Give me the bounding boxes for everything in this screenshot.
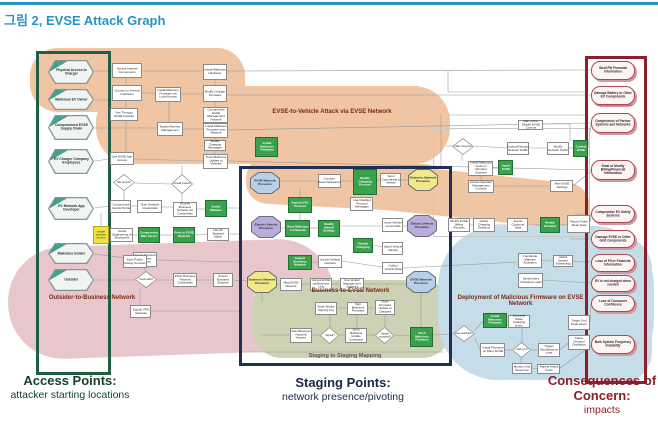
attack-step-node: Install Malicious Firmware over Network — [203, 123, 228, 138]
attack-step-node: Steal Vendor Signing Key — [315, 302, 337, 315]
consequence-node: Loss of PII or Financial Information — [591, 254, 635, 272]
attack-step-node: Access Vehicle Interface — [318, 255, 342, 268]
attack-action-node: Install Malicious Firmware — [255, 137, 278, 157]
consequence-node: Compromise of Partner Systems and Networ… — [591, 113, 635, 133]
attack-step-node: Launch Targeted Attack — [207, 228, 229, 241]
attack-action-node: Push Malicious Firmware — [410, 327, 433, 347]
attack-step-node: Access Operator Management Console — [468, 180, 494, 193]
attack-step-node: Trigger Simultaneous Load — [538, 343, 560, 357]
attack-step-node: Gain Network Credentials — [137, 200, 162, 213]
consequence-node: Bulk System Frequency Instability — [591, 335, 635, 354]
attack-action-node: Install Malware — [205, 200, 227, 217]
region-label: Outsider-to-Business Network — [27, 295, 157, 301]
attack-step-node: See Through EVSE Firewall — [110, 108, 138, 121]
attack-step-node: Man-in-the-Middle EVSE Comms — [518, 120, 543, 130]
attack-step-node: Push Malicious Update to Vehicles — [203, 154, 228, 169]
attack-step-node: Modify EVSE Billing Records — [448, 218, 470, 232]
attack-action-node: Control EVSE — [573, 140, 588, 157]
attack-step-node: Target Grid Peak Hours — [568, 315, 590, 330]
attack-action-node: Exploit V2G Protocol — [288, 197, 312, 213]
attack-step-node: Install Malicious Hardware — [203, 64, 227, 80]
figure-page: 그림 2, EVSE Attack Graph Physical Access … — [0, 0, 658, 432]
attack-action-node: Pivot to EVSE Network — [173, 227, 195, 243]
attack-step-node: Exploit VPN Gateway — [130, 305, 151, 318]
attack-step-node: Gain Business Network Access — [290, 328, 312, 343]
attack-step-node: Issue Vehicle Commands — [382, 218, 403, 232]
legend-consequences: Consequences of Concern: impacts — [546, 374, 658, 416]
consequence-node: Steal PII/ Financial Information — [591, 61, 635, 80]
consequences-heading: Consequences of Concern: — [546, 374, 658, 404]
attack-step-node: Coordinate Malware Activation — [518, 253, 542, 268]
attack-action-node: Disable Charging — [353, 238, 373, 253]
attack-step-node: Synchronize Charging Loads — [518, 273, 543, 288]
attack-step-node: Access Internal Components — [112, 63, 142, 78]
attack-step-node: Install Malicious Code on Operator Syste… — [468, 161, 493, 176]
attack-step-node: Connect to Internal Interfaces — [112, 85, 142, 101]
access-point-hexagon: Outsider — [48, 269, 94, 291]
attack-action-node: Modify Charging Process — [353, 169, 377, 195]
attack-step-node: Scan Public-Facing Services — [123, 255, 147, 268]
attack-step-node: Report False Meter Data — [567, 215, 590, 233]
access-point-hexagon: EV Network App Developer — [48, 197, 94, 220]
single-vehicle-note: * Single Vehicle Compromise — [588, 104, 638, 107]
access-point-hexagon: Malicious Insider — [48, 243, 94, 264]
attack-step-node: Sign Malicious Firmware — [347, 302, 368, 315]
consequences-subheading: impacts — [546, 404, 658, 417]
consequence-node: Loss of Consumer Confidence — [591, 295, 635, 312]
attack-step-node: Phish Business Network Credentials — [173, 273, 197, 287]
staging-presence-octagon: Electric Vehicle Presence — [251, 216, 281, 238]
attack-step-node: Falsify Charging Sessions — [473, 218, 495, 232]
staging-presence-octagon: Electric Vehicle Presence — [407, 215, 437, 237]
attack-step-node: Capture/Decrypt Network Traffic — [507, 142, 529, 155]
access-point-hexagon: EV Charger Company Employees — [48, 149, 94, 174]
attack-step-node: Use EVSE App Access — [110, 152, 134, 165]
attack-step-node: Compromise Vendor Portal — [110, 200, 131, 213]
staging-mapping-label: Staging to Staging Mapping — [300, 353, 390, 359]
attack-step-node: Export Customer Data — [507, 218, 528, 232]
decision-node: Firewall present? — [171, 174, 193, 194]
attack-step-node: Collect Vehicle Data — [382, 262, 403, 274]
attack-step-node: Attack System Scheduling — [553, 255, 573, 267]
access-points-subheading: attacker starting locations — [2, 389, 138, 402]
attack-step-node: Conduct Reconnaissance — [318, 174, 341, 188]
access-point-hexagon: Physical Access to Charger — [48, 60, 94, 84]
attack-step-node: Compromise EVSE Management Network — [203, 107, 228, 123]
region-label: Deployment of Malicious Firmware on EVSE… — [448, 295, 593, 307]
attack-step-node: Monitor Grid Response — [512, 363, 532, 374]
consequence-node: EV is not charged when needed — [591, 275, 635, 292]
staging-points-heading: Staging Points: — [268, 376, 418, 391]
attack-action-node: Install Malicious Firmware — [483, 313, 507, 328]
staging-presence-octagon: Business Network Presence — [408, 169, 438, 191]
attack-action-node: Modify Demand — [540, 217, 560, 233]
consequence-node: Steal or Modify Billing/Financial Inform… — [591, 160, 635, 180]
legend-access-points: Access Points: attacker starting locatio… — [2, 374, 138, 402]
attack-step-node: Install Firmware on Many EVSE — [480, 343, 505, 357]
diagram-canvas: Physical Access to ChargerMalicious EV O… — [0, 0, 658, 432]
consequence-node: Damage EVSE or Other Grid Components — [591, 230, 635, 248]
legend-staging-points: Staging Points: network presence/pivotin… — [268, 376, 418, 404]
consequence-node: Compromise EV Safety Systems — [591, 205, 635, 223]
attack-action-node: Exploit Business Network — [288, 255, 312, 270]
staging-presence-octagon: Business Network Presence — [247, 271, 277, 293]
region-label: EVSE-to-Vehicle Attack via EVSE Network — [262, 109, 402, 115]
staging-points-subheading: network presence/pivoting — [268, 391, 418, 404]
attack-step-node: Cause Demand Oscillation — [568, 335, 590, 350]
attack-step-node: Push Firmware Update to Chargers — [375, 300, 395, 315]
access-point-hexagon: Compromised EVSE Supply Chain — [48, 115, 94, 140]
attack-step-node: Modify Charger Firmware — [203, 85, 227, 102]
attack-action-node: Send Malicious Commands — [285, 220, 310, 237]
attack-action-node: Modify Vehicle Settings — [318, 220, 340, 237]
decision-node: Has access? — [113, 174, 135, 191]
attack-step-node: Access Business Systems — [213, 273, 233, 287]
insider-access-node: Insider provides access — [93, 226, 109, 244]
region-label: Business-to-EVSE Network — [303, 288, 398, 294]
attack-step-node: Alter EVSE Settings — [550, 180, 573, 192]
attack-step-node: Access Business Network via Credentials — [173, 202, 197, 217]
attack-action-node: Spoof EVSE — [498, 160, 513, 175]
attack-step-node: Spoof Vehicle Identity — [382, 242, 403, 255]
attack-step-node: Use Modified Protocol Messages — [350, 197, 373, 211]
attack-step-node: Send Malicious Update Command — [345, 328, 367, 343]
attack-step-node: Map EVSE Network — [280, 278, 302, 291]
access-point-hexagon: Malicious EV Owner — [48, 89, 94, 110]
staging-presence-octagon: EVSE Network Presence — [250, 172, 280, 194]
attack-step-node: Schedule Mass Charging Event — [508, 315, 530, 328]
staging-presence-octagon: EVSE Network Presence — [406, 271, 436, 293]
attack-step-node: Social Engineering of Employees — [110, 228, 133, 242]
access-points-heading: Access Points: — [2, 374, 138, 389]
attack-step-node: Send Commands to Vehicle — [380, 173, 401, 187]
attack-step-node: Modify Charging Messages — [204, 140, 226, 151]
consequence-node: Damage Battery or Other EV Components — [591, 86, 635, 105]
attack-step-node: Modify Network Traffic — [547, 142, 569, 155]
attack-action-node: Compromise Web Server — [138, 227, 160, 243]
attack-step-node: Install Malicious Firmware via Local Acc… — [155, 87, 181, 102]
attack-step-node: Exploit Remote Management — [157, 122, 183, 136]
